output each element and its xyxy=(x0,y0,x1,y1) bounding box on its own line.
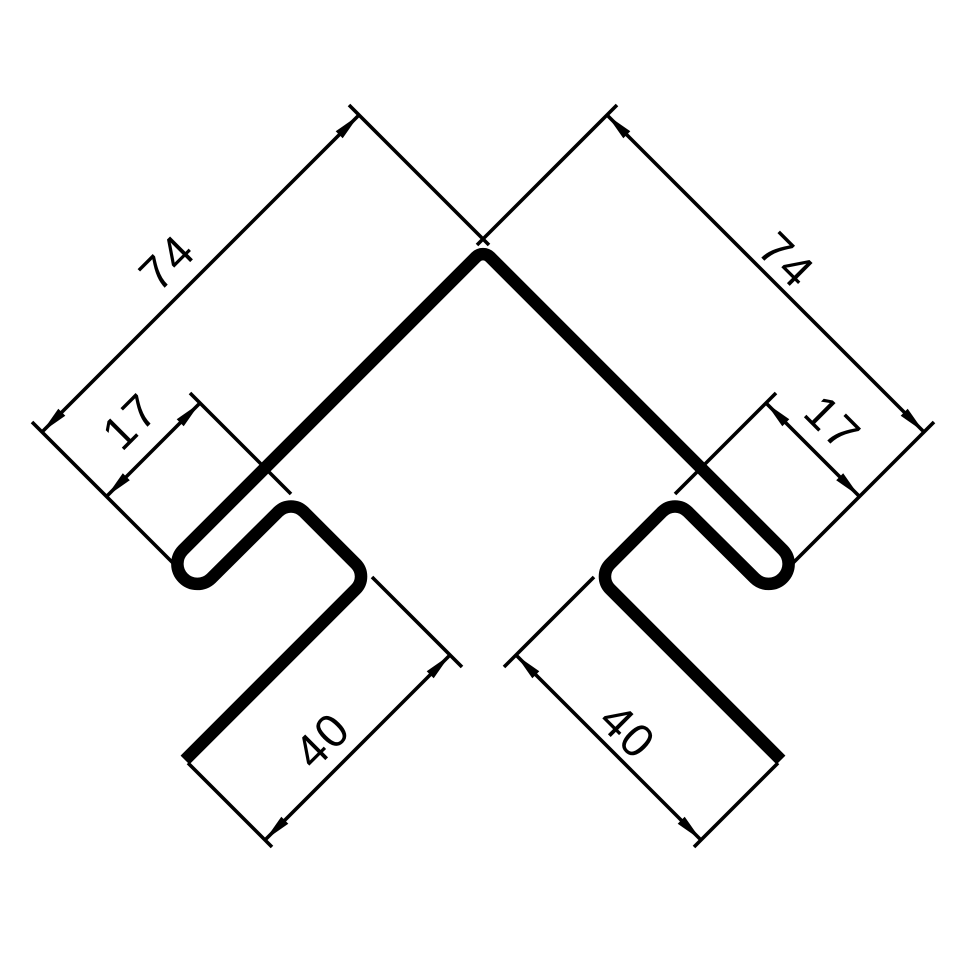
drawing-background xyxy=(0,0,960,960)
technical-drawing: 74 74 17 17 40 40 xyxy=(0,0,960,960)
drawing-canvas: 74 74 17 17 40 40 xyxy=(0,0,960,960)
